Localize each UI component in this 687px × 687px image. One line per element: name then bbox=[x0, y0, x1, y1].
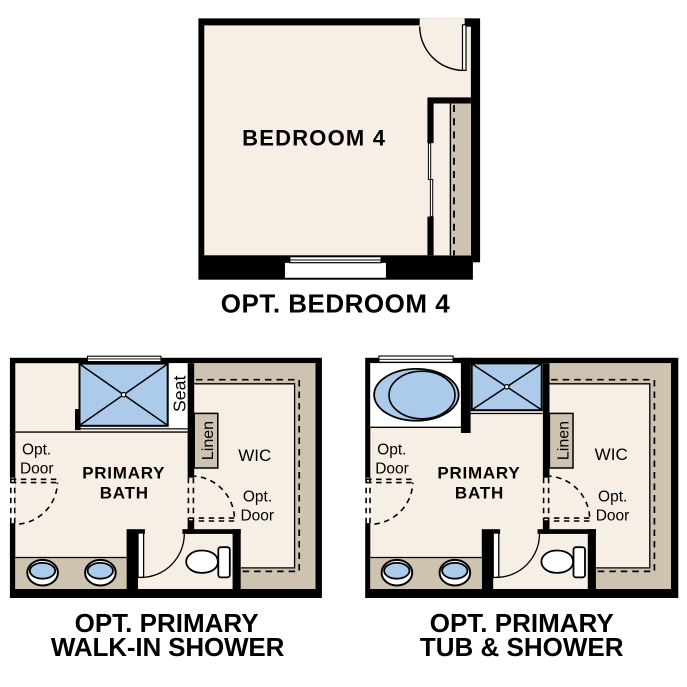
svg-text:BATH: BATH bbox=[100, 483, 149, 502]
svg-text:Linen: Linen bbox=[555, 421, 572, 460]
svg-text:OPT. BEDROOM 4: OPT. BEDROOM 4 bbox=[221, 288, 451, 318]
svg-text:Opt.: Opt. bbox=[243, 489, 272, 506]
svg-text:Linen: Linen bbox=[200, 421, 217, 460]
svg-text:Door: Door bbox=[240, 507, 274, 524]
svg-text:PRIMARY: PRIMARY bbox=[82, 464, 165, 483]
svg-text:Seat: Seat bbox=[169, 375, 189, 412]
svg-text:Opt.: Opt. bbox=[22, 442, 51, 459]
svg-text:BATH: BATH bbox=[455, 483, 504, 502]
svg-text:TUB & SHOWER: TUB & SHOWER bbox=[420, 632, 624, 662]
svg-text:Door: Door bbox=[596, 507, 630, 524]
svg-text:Opt.: Opt. bbox=[598, 489, 627, 506]
svg-text:Door: Door bbox=[375, 460, 409, 477]
svg-text:WIC: WIC bbox=[595, 445, 628, 464]
svg-text:PRIMARY: PRIMARY bbox=[437, 464, 520, 483]
svg-text:BEDROOM 4: BEDROOM 4 bbox=[242, 125, 386, 150]
svg-text:WALK-IN SHOWER: WALK-IN SHOWER bbox=[51, 632, 285, 662]
svg-text:Door: Door bbox=[20, 460, 54, 477]
svg-text:Opt.: Opt. bbox=[377, 442, 406, 459]
svg-text:WIC: WIC bbox=[238, 446, 271, 465]
